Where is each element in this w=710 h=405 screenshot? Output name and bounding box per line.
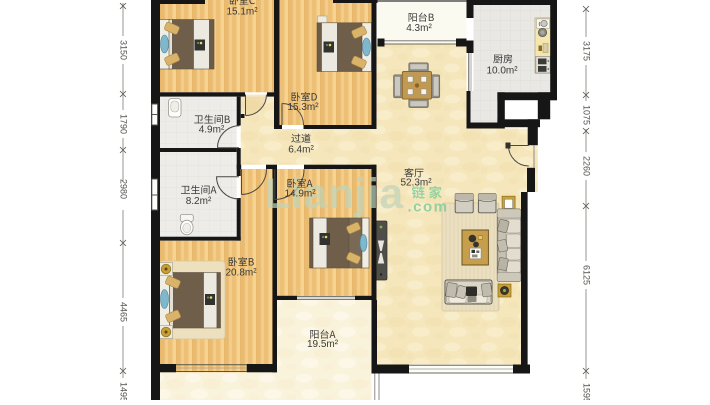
svg-text:2260: 2260: [582, 156, 592, 176]
svg-text:20.8m²: 20.8m²: [225, 268, 257, 279]
svg-text:2980: 2980: [119, 179, 129, 199]
svg-text:4.9m²: 4.9m²: [199, 125, 225, 136]
svg-text:6125: 6125: [582, 265, 592, 285]
svg-text:15.3m²: 15.3m²: [287, 102, 319, 113]
svg-text:3150: 3150: [119, 40, 129, 60]
svg-text:1790: 1790: [119, 114, 129, 134]
svg-text:1495: 1495: [119, 382, 129, 400]
svg-text:4465: 4465: [119, 302, 129, 322]
svg-text:52.3m²: 52.3m²: [400, 178, 432, 189]
svg-text:8.2m²: 8.2m²: [186, 196, 212, 207]
svg-text:6.4m²: 6.4m²: [288, 145, 314, 156]
svg-text:10.0m²: 10.0m²: [486, 66, 518, 77]
svg-text:4.3m²: 4.3m²: [406, 23, 432, 34]
svg-text:3175: 3175: [582, 41, 592, 61]
svg-text:1075: 1075: [582, 105, 592, 125]
svg-text:.com: .com: [408, 199, 449, 216]
svg-text:14.9m²: 14.9m²: [284, 189, 316, 200]
svg-text:1595: 1595: [582, 383, 592, 400]
svg-text:19.5m²: 19.5m²: [307, 339, 339, 350]
svg-text:15.1m²: 15.1m²: [226, 7, 258, 18]
